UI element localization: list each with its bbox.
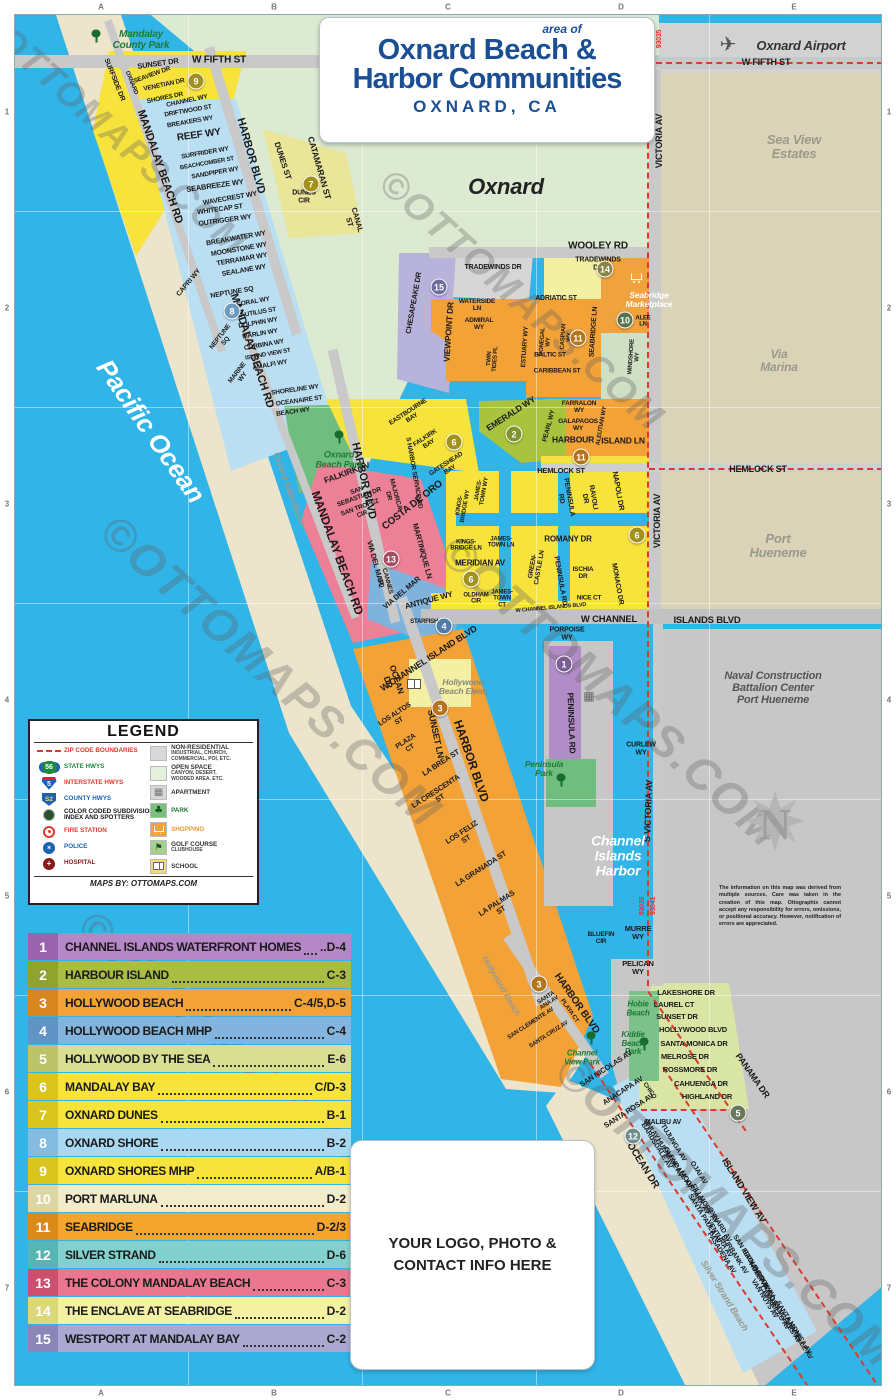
logo-placeholder-text: YOUR LOGO, PHOTO & CONTACT INFO HERE <box>388 1233 556 1278</box>
gridline <box>15 603 882 604</box>
index-body: OXNARD SHORES MHPA/B-1 <box>58 1157 351 1184</box>
legend-item: 56STATE HWYS <box>34 759 150 775</box>
map-label: JAMES- TOWN LN <box>488 537 515 550</box>
state-icon: 56 <box>34 761 64 774</box>
index-number: 10 <box>28 1185 58 1212</box>
legend-item: COLOR CODED SUBDIVISION INDEX AND SPOTTE… <box>34 807 150 823</box>
map-label: HARBOUR <box>552 435 594 444</box>
index-name: HOLLYWOOD BEACH MHP <box>65 1024 212 1038</box>
legend-item-label: INTERSTATE HWYS <box>64 780 123 787</box>
legend-item: ♣PARK <box>150 802 253 820</box>
legend-item-label: HOSPITAL <box>64 860 95 867</box>
spotter-badge-14: 14 <box>597 261 614 278</box>
tree-icon: ♣ <box>150 803 167 818</box>
spotter-icon <box>34 809 64 821</box>
grid-letter-A: A <box>98 3 104 12</box>
index-row: 2HARBOUR ISLANDC-3 <box>28 961 351 988</box>
logo-placeholder-box: YOUR LOGO, PHOTO & CONTACT INFO HERE <box>350 1140 595 1370</box>
map-label: PORPOISE WY <box>550 626 585 641</box>
cart-glyph <box>154 825 164 834</box>
index-name: HOLLYWOOD BY THE SEA <box>65 1052 210 1066</box>
index-name: SEABRIDGE <box>65 1220 133 1234</box>
grid-number-4: 4 <box>5 696 9 705</box>
spotter-badge-5: 5 <box>730 1105 747 1122</box>
canal <box>456 513 656 526</box>
map-label: FARRALON WY <box>562 400 597 414</box>
legend-item: OPEN SPACECANYON, DESERT, WOODED AREA, E… <box>150 764 253 783</box>
book-icon <box>407 679 421 689</box>
index-name: OXNARD DUNES <box>65 1108 158 1122</box>
community-index: 1CHANNEL ISLANDS WATERFRONT HOMES..D-42H… <box>28 933 351 1353</box>
legend-item: +HOSPITAL <box>34 856 150 872</box>
legend-item-label: COUNTY HWYS <box>64 796 111 803</box>
tree-icon <box>91 30 102 43</box>
legend-item-label: ZIP CODE BOUNDARIES <box>64 748 138 755</box>
plane-icon: ✈ <box>720 32 737 56</box>
index-grid-ref: C-4 <box>327 1024 346 1038</box>
index-body: CHANNEL ISLANDS WATERFRONT HOMES..D-4 <box>58 933 351 960</box>
index-grid-ref: D-2 <box>327 1304 346 1318</box>
golf-icon: ⚑ <box>150 840 167 855</box>
grid-number-6: 6 <box>5 1088 9 1097</box>
index-leader <box>213 1050 324 1067</box>
compass-rose: N <box>729 773 821 869</box>
legend-item: FIRE STATION <box>34 823 150 839</box>
index-grid-ref: A/B-1 <box>315 1164 346 1178</box>
map-label: ALEE LN <box>635 316 650 329</box>
map-label: MELROSE DR <box>661 1053 709 1061</box>
zip-boundary <box>647 63 649 986</box>
map-label: Mandalay County Park <box>113 30 170 52</box>
legend-item-label: COLOR CODED SUBDIVISION INDEX AND SPOTTE… <box>64 809 154 823</box>
police-icon: ✶ <box>34 842 64 854</box>
apartment-icon: ▦ <box>150 785 167 800</box>
index-grid-ref: C-4/5,D-5 <box>294 996 346 1010</box>
spotter-badge-15: 15 <box>431 279 448 296</box>
index-grid-ref: B-2 <box>327 1136 346 1150</box>
map-label: MURRE WY <box>625 925 652 941</box>
map-label: Naval Construction Battalion Center Port… <box>724 671 821 707</box>
index-leader <box>243 1330 324 1347</box>
legend-item: ✶POLICE <box>34 840 150 856</box>
index-body: HOLLYWOOD BY THE SEAE-6 <box>58 1045 351 1072</box>
map-label: SANTA MONICA DR <box>660 1040 727 1048</box>
map-label: W FIFTH ST <box>192 56 246 67</box>
index-body: OXNARD DUNESB-1 <box>58 1101 351 1128</box>
legend-item-label: OPEN SPACECANYON, DESERT, WOODED AREA, E… <box>171 764 224 783</box>
map-label: HEMLOCK ST <box>729 465 787 475</box>
index-number: 2 <box>28 961 58 988</box>
legend-item-sub: CLUBHOUSE <box>171 848 217 854</box>
index-grid-ref: C-2 <box>327 1332 346 1346</box>
map-label: HEMLOCK ST <box>537 467 585 475</box>
map-label: BALTIC ST <box>534 351 566 358</box>
index-leader <box>304 938 317 955</box>
index-row: 7OXNARD DUNESB-1 <box>28 1101 351 1128</box>
index-grid-ref: C-3 <box>327 1276 346 1290</box>
index-name: WESTPORT AT MANDALAY BAY <box>65 1332 240 1346</box>
spotter-badge-4: 4 <box>436 618 453 635</box>
index-row: 1CHANNEL ISLANDS WATERFRONT HOMES..D-4 <box>28 933 351 960</box>
index-leader <box>158 1078 312 1095</box>
index-grid-ref: C-3 <box>327 968 346 982</box>
index-row: 13THE COLONY MANDALAY BEACHC-3 <box>28 1269 351 1296</box>
map-label: SUNSET DR <box>656 1013 698 1021</box>
cart-icon <box>630 271 642 283</box>
index-name: OXNARD SHORE <box>65 1136 158 1150</box>
grid-number-1: 1 <box>887 108 891 117</box>
spotter-badge-13: 13 <box>383 551 400 568</box>
map-label: PELICAN WY <box>622 960 654 976</box>
map-label: NICE CT <box>577 594 602 601</box>
legend-item-label: SCHOOL <box>171 863 198 870</box>
legend-item: S2COUNTY HWYS <box>34 791 150 807</box>
legend-title: LEGEND <box>34 723 253 743</box>
index-body: HOLLYWOOD BEACHC-4/5,D-5 <box>58 989 351 1016</box>
index-grid-ref: E-6 <box>327 1052 346 1066</box>
index-number: 13 <box>28 1269 58 1296</box>
grid-number-3: 3 <box>5 500 9 509</box>
map-label: ISLAND LN <box>601 436 645 445</box>
index-leader <box>161 1134 323 1151</box>
grid-number-2: 2 <box>5 304 9 313</box>
legend-left-column: ZIP CODE BOUNDARIES56STATE HWYS5INTERSTA… <box>34 743 150 876</box>
map-label: Port Hueneme <box>749 532 806 560</box>
grid-letter-C: C <box>445 3 451 12</box>
map-label: PENINSULA RD <box>565 692 576 753</box>
index-number: 9 <box>28 1157 58 1184</box>
spotter-badge-3: 3 <box>531 976 548 993</box>
index-name: THE ENCLAVE AT SEABRIDGE <box>65 1304 232 1318</box>
zip-icon <box>34 750 64 752</box>
map-label: MERIDIAN AV <box>455 560 505 569</box>
map-label: VICTORIA AV <box>653 494 663 548</box>
index-leader <box>215 1022 324 1039</box>
grid-letter-D: D <box>618 3 624 12</box>
legend-item-label: POLICE <box>64 844 87 851</box>
map-world: ©OTTOMAPS.COM©OTTOMAPS.COM©OTTOMAPS.COM©… <box>14 14 882 1386</box>
grid-number-7: 7 <box>887 1284 891 1293</box>
grid-number-5: 5 <box>5 892 9 901</box>
legend-item: SHOPPING <box>150 820 253 838</box>
index-name: OXNARD SHORES MHP <box>65 1164 194 1178</box>
index-row: 15WESTPORT AT MANDALAY BAYC-2 <box>28 1325 351 1352</box>
map-label: JAMES- TOWN CT <box>491 589 512 608</box>
grid-letter-E: E <box>791 1389 796 1398</box>
legend-item-label: SHOPPING <box>171 826 204 833</box>
disclaimer-text: The information on this map was derived … <box>719 885 841 929</box>
title-line1: Oxnard Beach & <box>320 36 654 65</box>
index-row: 5HOLLYWOOD BY THE SEAE-6 <box>28 1045 351 1072</box>
index-number: 14 <box>28 1297 58 1324</box>
apartment-glyph: ▦ <box>154 787 163 798</box>
cart-icon <box>150 822 167 837</box>
road-s-victoria-av <box>653 621 663 986</box>
spotter-glyph <box>43 809 55 821</box>
map-label: CARIBBEAN ST <box>534 367 581 374</box>
spotter-badge-1: 1 <box>556 656 573 673</box>
index-leader <box>186 994 291 1011</box>
title-line2: Harbor Communities <box>320 65 654 94</box>
fire-glyph <box>43 826 55 838</box>
legend-right-column: NON-RESIDENTIALINDUSTRIAL, CHURCH, COMME… <box>150 743 253 876</box>
index-grid-ref: ..D-4 <box>320 940 346 954</box>
index-body: OXNARD SHOREB-2 <box>58 1129 351 1156</box>
tree-icon <box>334 431 345 444</box>
map-label: HOLLYWOOD BLVD <box>659 1026 727 1034</box>
legend-item: NON-RESIDENTIALINDUSTRIAL, CHURCH, COMME… <box>150 744 253 763</box>
index-leader <box>161 1106 324 1123</box>
map-label: LAUREL CT <box>654 1001 695 1009</box>
book-glyph <box>153 862 164 870</box>
grid-number-5: 5 <box>887 892 891 901</box>
map-label: OLDHAM CIR <box>463 593 488 606</box>
index-number: 1 <box>28 933 58 960</box>
spotter-badge-11: 11 <box>573 449 590 466</box>
map-label: VICTORIA AV <box>655 114 665 168</box>
index-name: PORT MARLUNA <box>65 1192 158 1206</box>
grid-letter-E: E <box>791 3 796 12</box>
spotter-badge-6: 6 <box>446 434 463 451</box>
legend-item-label: NON-RESIDENTIALINDUSTRIAL, CHURCH, COMME… <box>171 744 231 763</box>
spotter-badge-6: 6 <box>629 527 646 544</box>
spotter-badge-9: 9 <box>188 73 205 90</box>
grid-number-1: 1 <box>5 108 9 117</box>
map-label: 93035 <box>656 30 664 48</box>
state-glyph: 56 <box>42 761 57 774</box>
index-name: CHANNEL ISLANDS WATERFRONT HOMES <box>65 940 301 954</box>
map-label: HIGHLAND DR <box>682 1093 732 1101</box>
map-label: WINDSHORE WY <box>627 339 642 375</box>
legend-item-sub: INDUSTRIAL, CHURCH, COMMERCIAL, POI, ETC… <box>171 751 231 763</box>
legend-item: ZIP CODE BOUNDARIES <box>34 743 150 759</box>
map-label: TRADEWINDS DR <box>465 264 522 272</box>
map-label: 93041 <box>650 897 658 915</box>
grid-letter-D: D <box>618 1389 624 1398</box>
index-number: 3 <box>28 989 58 1016</box>
map-label: TWIN TIDES PL <box>486 346 501 372</box>
county-icon: S2 <box>34 793 64 806</box>
map-label: Oxnard Airport <box>756 39 845 53</box>
grid-letter-C: C <box>445 1389 451 1398</box>
fire-icon <box>34 826 64 838</box>
index-name: HOLLYWOOD BEACH <box>65 996 183 1010</box>
spotter-badge-7: 7 <box>303 176 320 193</box>
index-name: SILVER STRAND <box>65 1248 156 1262</box>
map-label: Seabridge Marketplace <box>626 291 673 309</box>
map-label: W CHANNEL <box>581 615 637 625</box>
legend-item-sub: CANYON, DESERT, WOODED AREA, ETC. <box>171 771 224 783</box>
index-leader <box>136 1218 314 1235</box>
spotter-badge-8: 8 <box>224 303 241 320</box>
index-leader <box>161 1190 324 1207</box>
map-label: BLUEFIN CIR <box>588 931 615 945</box>
title-line3: OXNARD, CA <box>320 97 654 117</box>
index-body: WESTPORT AT MANDALAY BAYC-2 <box>58 1325 351 1352</box>
legend-item: ⚑GOLF COURSECLUBHOUSE <box>150 839 253 857</box>
map-label: Peninsula Park <box>525 760 563 778</box>
grid-letter-A: A <box>98 1389 104 1398</box>
county-glyph: S2 <box>42 793 56 806</box>
grid-number-4: 4 <box>887 696 891 705</box>
index-row: 3HOLLYWOOD BEACHC-4/5,D-5 <box>28 989 351 1016</box>
index-number: 5 <box>28 1045 58 1072</box>
apartment-icon: ▦ <box>583 689 594 703</box>
map-label: ROMANY DR <box>544 536 591 545</box>
interstate-icon: 5 <box>34 777 64 790</box>
hospital-glyph: + <box>43 858 55 870</box>
zip-glyph <box>37 750 61 752</box>
grid-number-7: 7 <box>5 1284 9 1293</box>
map-label: W FIFTH ST <box>742 58 791 68</box>
golf-glyph: ⚑ <box>155 843 163 853</box>
spotter-badge-3: 3 <box>432 700 449 717</box>
map-label: CAHUENGA DR <box>674 1080 728 1088</box>
index-leader <box>235 1302 324 1319</box>
compass-north-label: N <box>729 799 821 850</box>
grid-number-2: 2 <box>887 304 891 313</box>
index-row: 10PORT MARLUNAD-2 <box>28 1185 351 1212</box>
index-row: 9OXNARD SHORES MHPA/B-1 <box>28 1157 351 1184</box>
map-label: Channel Islands Harbor <box>591 833 645 878</box>
book-icon <box>150 859 167 874</box>
police-glyph: ✶ <box>43 842 55 854</box>
legend-item-label: FIRE STATION <box>64 828 107 835</box>
legend-box: LEGEND ZIP CODE BOUNDARIES56STATE HWYS5I… <box>28 719 259 905</box>
map-label: CURLEW WY <box>626 741 656 756</box>
map-label: ISLANDS BLVD <box>673 616 740 626</box>
index-body: SILVER STRANDD-6 <box>58 1241 351 1268</box>
map-canvas: ©OTTOMAPS.COM©OTTOMAPS.COM©OTTOMAPS.COM©… <box>14 14 882 1386</box>
index-name: THE COLONY MANDALAY BEACH <box>65 1276 250 1290</box>
index-number: 11 <box>28 1213 58 1240</box>
legend-item: ▦APARTMENT <box>150 783 253 801</box>
grid-letter-B: B <box>271 1389 277 1398</box>
index-leader <box>159 1246 324 1263</box>
index-row: 8OXNARD SHOREB-2 <box>28 1129 351 1156</box>
map-label: 93035 <box>639 897 647 915</box>
legend-item-label: GOLF COURSECLUBHOUSE <box>171 841 217 854</box>
map-label: KINGS- BRIDGE LN <box>450 540 481 553</box>
map-document: ©OTTOMAPS.COM©OTTOMAPS.COM©OTTOMAPS.COM©… <box>0 0 896 1400</box>
spotter-badge-11: 11 <box>570 330 587 347</box>
map-label: Hollywood Beach Elem. <box>439 678 487 696</box>
index-leader <box>197 1162 311 1179</box>
map-label: GALAPAGOS WY <box>558 418 598 432</box>
index-number: 7 <box>28 1101 58 1128</box>
legend-item-label: APARTMENT <box>171 789 210 796</box>
map-label: WATERSIDE LN <box>459 298 495 312</box>
index-grid-ref: D-6 <box>327 1248 346 1262</box>
tree-glyph: ♣ <box>154 805 163 816</box>
grid-number-3: 3 <box>887 500 891 509</box>
map-label: Channel View Park <box>564 1049 600 1066</box>
legend-item-label: STATE HWYS <box>64 764 104 771</box>
spotter-badge-6: 6 <box>463 571 480 588</box>
index-row: 12SILVER STRANDD-6 <box>28 1241 351 1268</box>
spotter-badge-10: 10 <box>617 312 634 329</box>
index-leader <box>172 966 324 983</box>
index-number: 8 <box>28 1129 58 1156</box>
title-box: area of Oxnard Beach & Harbor Communitie… <box>319 17 655 143</box>
index-row: 11SEABRIDGED-2/3 <box>28 1213 351 1240</box>
map-label: ADRIATIC ST <box>535 295 577 303</box>
grid-number-6: 6 <box>887 1088 891 1097</box>
swatch-icon <box>150 766 167 781</box>
index-number: 12 <box>28 1241 58 1268</box>
map-label: ADMIRAL WY <box>465 317 494 331</box>
swatch-icon <box>150 746 167 761</box>
map-label: ROSSMORE DR <box>663 1066 717 1074</box>
spotter-badge-2: 2 <box>506 426 523 443</box>
map-label: Hobie Beach <box>626 1000 649 1017</box>
map-label: Via Marina <box>760 348 797 374</box>
index-body: MANDALAY BAYC/D-3 <box>58 1073 351 1100</box>
index-name: MANDALAY BAY <box>65 1080 155 1094</box>
index-grid-ref: D-2 <box>327 1192 346 1206</box>
map-label: LAKESHORE DR <box>657 989 715 997</box>
index-body: HARBOUR ISLANDC-3 <box>58 961 351 988</box>
spotter-badge-12: 12 <box>625 1128 642 1145</box>
index-body: THE ENCLAVE AT SEABRIDGED-2 <box>58 1297 351 1324</box>
index-body: SEABRIDGED-2/3 <box>58 1213 351 1240</box>
index-row: 14THE ENCLAVE AT SEABRIDGED-2 <box>28 1297 351 1324</box>
map-label: ISCHIA DR <box>573 566 594 580</box>
legend-item: SCHOOL <box>150 857 253 875</box>
interstate-glyph: 5 <box>42 777 57 790</box>
map-label: Oxnard Beach Park <box>315 450 362 469</box>
index-number: 4 <box>28 1017 58 1044</box>
index-name: HARBOUR ISLAND <box>65 968 169 982</box>
legend-item-label: PARK <box>171 807 188 814</box>
legend-credit: MAPS BY: OTTOMAPS.COM <box>34 876 253 888</box>
map-label: Sea View Estates <box>767 133 821 161</box>
index-number: 15 <box>28 1325 58 1352</box>
index-grid-ref: C/D-3 <box>315 1080 346 1094</box>
index-grid-ref: B-1 <box>327 1108 346 1122</box>
hospital-icon: + <box>34 858 64 870</box>
index-body: PORT MARLUNAD-2 <box>58 1185 351 1212</box>
map-label: WOOLEY RD <box>568 242 628 253</box>
index-body: HOLLYWOOD BEACH MHPC-4 <box>58 1017 351 1044</box>
index-row: 6MANDALAY BAYC/D-3 <box>28 1073 351 1100</box>
index-row: 4HOLLYWOOD BEACH MHPC-4 <box>28 1017 351 1044</box>
grid-letter-B: B <box>271 3 277 12</box>
index-body: THE COLONY MANDALAY BEACHC-3 <box>58 1269 351 1296</box>
legend-item: 5INTERSTATE HWYS <box>34 775 150 791</box>
map-label: Oxnard <box>468 175 544 199</box>
index-leader <box>253 1274 324 1291</box>
index-grid-ref: D-2/3 <box>317 1220 346 1234</box>
index-number: 6 <box>28 1073 58 1100</box>
